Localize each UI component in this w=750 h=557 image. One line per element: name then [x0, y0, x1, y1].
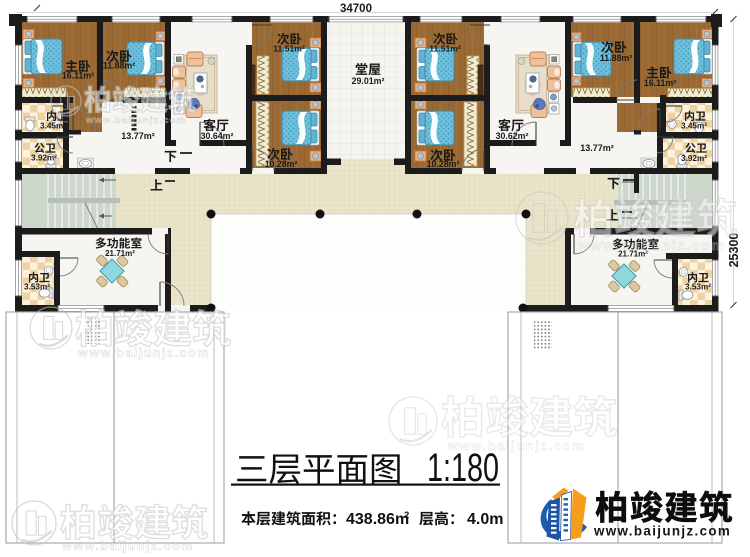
svg-text:25300: 25300 [727, 233, 741, 268]
svg-text:3.53m²: 3.53m² [685, 283, 711, 292]
svg-text:www.baijunjz.com: www.baijunjz.com [61, 539, 194, 553]
svg-text:www.baijunjz.com: www.baijunjz.com [577, 237, 726, 253]
svg-text:11.88m²: 11.88m² [103, 61, 135, 71]
svg-text:www.baijunjz.com: www.baijunjz.com [593, 524, 731, 539]
svg-text:34700: 34700 [340, 3, 372, 15]
svg-text:4.0m: 4.0m [467, 511, 503, 528]
svg-text:13.77m²: 13.77m² [121, 131, 155, 141]
svg-text:3.92m²: 3.92m² [681, 154, 707, 163]
svg-text:10.28m²: 10.28m² [265, 159, 298, 169]
svg-text:3.53m²: 3.53m² [24, 283, 50, 292]
svg-text:13.77m²: 13.77m² [580, 143, 614, 153]
svg-text:29.01m²: 29.01m² [352, 76, 385, 86]
svg-text:3.45m²: 3.45m² [681, 122, 707, 131]
svg-text:438.86m: 438.86m [346, 511, 409, 528]
svg-text:1:180: 1:180 [427, 446, 499, 490]
svg-text:3.45m²: 3.45m² [40, 122, 66, 131]
svg-text:30.62m²: 30.62m² [496, 131, 529, 141]
svg-text:3.92m²: 3.92m² [31, 154, 57, 163]
svg-text:10.28m²: 10.28m² [427, 159, 460, 169]
svg-text:21.71m²: 21.71m² [105, 249, 135, 258]
svg-text:www.baijunjz.com: www.baijunjz.com [85, 115, 186, 126]
svg-text:2: 2 [404, 510, 409, 521]
svg-text:16.11m²: 16.11m² [644, 78, 676, 88]
svg-text:30.64m²: 30.64m² [201, 131, 234, 141]
svg-text:11.88m²: 11.88m² [600, 53, 632, 63]
svg-text:www.baijunjz.com: www.baijunjz.com [77, 346, 210, 360]
svg-text:16.11m²: 16.11m² [62, 71, 94, 81]
svg-text:11.51m²: 11.51m² [429, 44, 461, 54]
svg-text:11.51m²: 11.51m² [273, 44, 305, 54]
